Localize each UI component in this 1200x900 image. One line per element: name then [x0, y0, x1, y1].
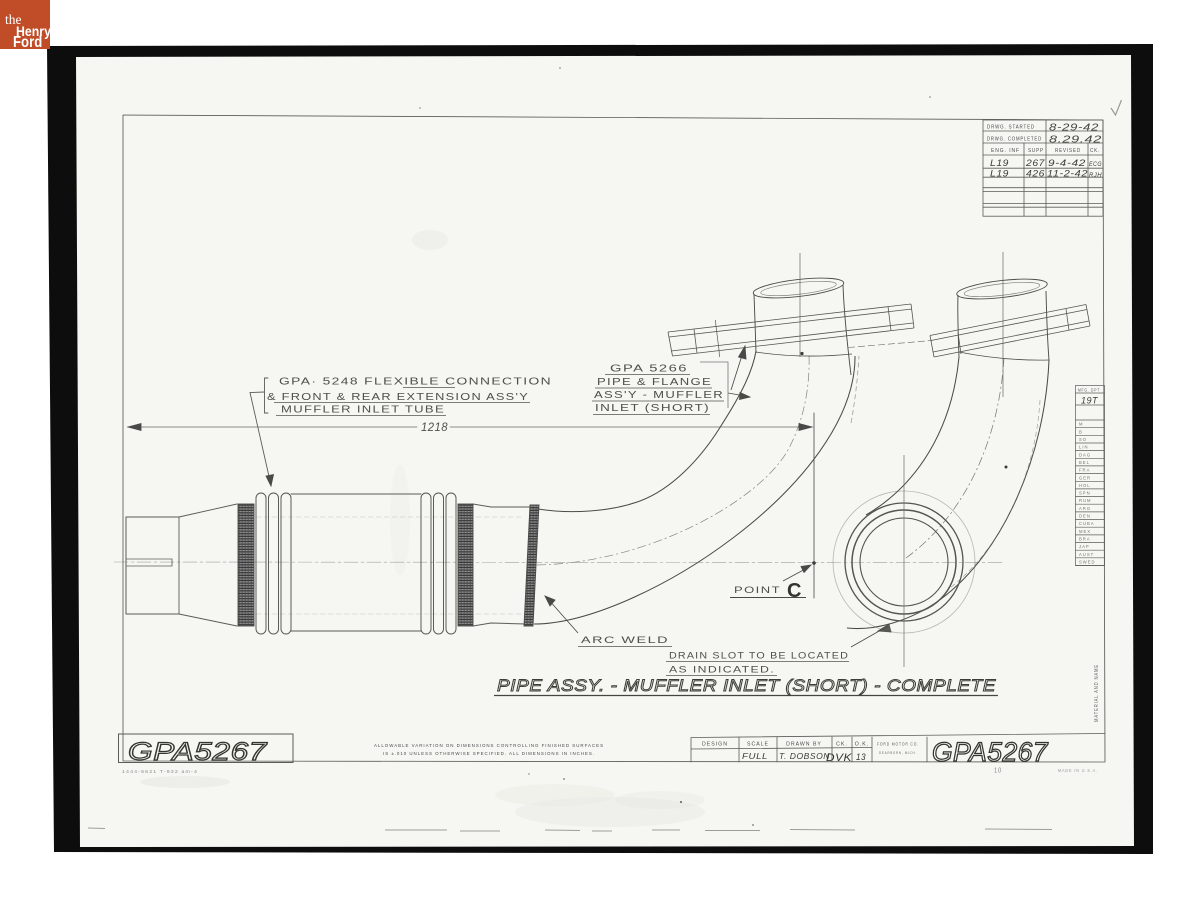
svg-text:GPA· 5248 FLEXIBLE CONNECTIO: GPA· 5248 FLEXIBLE CONNECTION [279, 377, 552, 388]
svg-text:GPA5267: GPA5267 [932, 737, 1048, 767]
svg-text:AUST: AUST [1079, 552, 1094, 557]
svg-text:SUPP: SUPP [1028, 148, 1044, 154]
svg-text:MUFFLER INLET TUBE: MUFFLER INLET TUBE [281, 405, 445, 416]
svg-text:BRA: BRA [1079, 537, 1091, 542]
svg-text:DESIGN: DESIGN [702, 742, 728, 748]
svg-text:M: M [1079, 422, 1084, 427]
svg-text:FRA: FRA [1079, 468, 1090, 473]
svg-text:CK.: CK. [1090, 148, 1100, 154]
svg-text:1444-5621 T-932 am-4: 1444-5621 T-932 am-4 [122, 769, 198, 774]
svg-text:CUBA: CUBA [1079, 521, 1095, 526]
svg-text:BEL: BEL [1079, 460, 1090, 465]
svg-text:SPN: SPN [1079, 491, 1091, 496]
svg-text:RUM: RUM [1079, 498, 1092, 503]
svg-text:DRAWN BY: DRAWN BY [786, 742, 822, 748]
svg-text:267: 267 [1025, 158, 1046, 168]
svg-text:DRAIN SLOT TO BE LOCATED: DRAIN SLOT TO BE LOCATED [669, 651, 849, 661]
svg-text:DRWG. STARTED: DRWG. STARTED [987, 125, 1035, 131]
svg-text:8.29.42: 8.29.42 [1049, 134, 1102, 146]
svg-text:REVISED: REVISED [1055, 148, 1081, 154]
svg-text:ARC WELD: ARC WELD [581, 635, 669, 646]
svg-text:MADE IN U.S.A.: MADE IN U.S.A. [1058, 768, 1098, 773]
svg-text:DVK: DVK [826, 752, 852, 764]
svg-text:DEARBORN, MICH.: DEARBORN, MICH. [879, 750, 917, 755]
svg-text:8-29-42: 8-29-42 [1049, 122, 1099, 134]
svg-text:9-4-42: 9-4-42 [1048, 158, 1086, 168]
svg-text:ECG: ECG [1089, 161, 1102, 168]
svg-text:DRWG. COMPLETED: DRWG. COMPLETED [987, 137, 1042, 143]
svg-text:426: 426 [1026, 169, 1045, 179]
svg-text:GPA 5266: GPA 5266 [610, 364, 688, 375]
svg-text:GER: GER [1079, 475, 1091, 480]
svg-text:ARG: ARG [1079, 506, 1091, 511]
svg-text:IS ±.010 UNLESS OTHERWISE SPEC: IS ±.010 UNLESS OTHERWISE SPECIFIED. ALL… [383, 751, 595, 756]
svg-text:JAP: JAP [1079, 544, 1090, 549]
svg-text:INLET (SHORT): INLET (SHORT) [595, 403, 710, 414]
svg-text:CK.: CK. [836, 742, 848, 748]
svg-text:PIPE ASSY. - MUFFLER INLET (SH: PIPE ASSY. - MUFFLER INLET (SHORT) - COM… [497, 676, 996, 695]
svg-text:DEN: DEN [1079, 514, 1091, 519]
svg-text:FULL: FULL [742, 752, 768, 761]
svg-text:POINT: POINT [734, 585, 781, 595]
svg-text:RJH: RJH [1089, 172, 1102, 179]
svg-text:B: B [1079, 429, 1083, 434]
svg-text:11-2-42: 11-2-42 [1047, 169, 1088, 179]
svg-text:MATERIAL AND NAME: MATERIAL AND NAME [1094, 664, 1100, 722]
svg-text:HOL: HOL [1079, 483, 1091, 488]
svg-text:T. DOBSON: T. DOBSON [779, 752, 830, 761]
svg-text:DAG: DAG [1079, 452, 1091, 457]
svg-text:PIPE & FLANGE: PIPE & FLANGE [597, 377, 712, 388]
svg-text:ASS'Y - MUFFLER: ASS'Y - MUFFLER [594, 390, 724, 401]
svg-text:C: C [787, 580, 802, 602]
svg-text:AS INDICATED.: AS INDICATED. [669, 665, 775, 675]
svg-text:L19: L19 [990, 169, 1009, 179]
svg-text:LIN: LIN [1079, 445, 1089, 450]
svg-text:1218: 1218 [421, 420, 448, 434]
svg-text:ENG. INF: ENG. INF [991, 148, 1020, 154]
svg-text:MEX: MEX [1079, 529, 1091, 534]
svg-text:ALLOWABLE VARIATION ON DIMENSI: ALLOWABLE VARIATION ON DIMENSIONS CONTRO… [374, 743, 604, 748]
svg-text:FORD MOTOR CO.: FORD MOTOR CO. [877, 742, 919, 747]
svg-text:13: 13 [856, 752, 866, 762]
svg-text:L19: L19 [990, 158, 1009, 168]
svg-text:O.K.: O.K. [855, 742, 869, 748]
svg-text:SCALE: SCALE [747, 742, 769, 748]
svg-text:MFG. DPT: MFG. DPT [1078, 388, 1100, 393]
svg-text:SWED: SWED [1079, 560, 1096, 565]
svg-text:19T: 19T [1081, 396, 1099, 407]
svg-text:10: 10 [994, 768, 1002, 775]
svg-text:SO: SO [1079, 437, 1087, 442]
svg-text:& FRONT & REAR EXTENSION ASS: & FRONT & REAR EXTENSION ASS'Y [267, 392, 529, 403]
svg-text:GPA5267: GPA5267 [128, 738, 268, 766]
